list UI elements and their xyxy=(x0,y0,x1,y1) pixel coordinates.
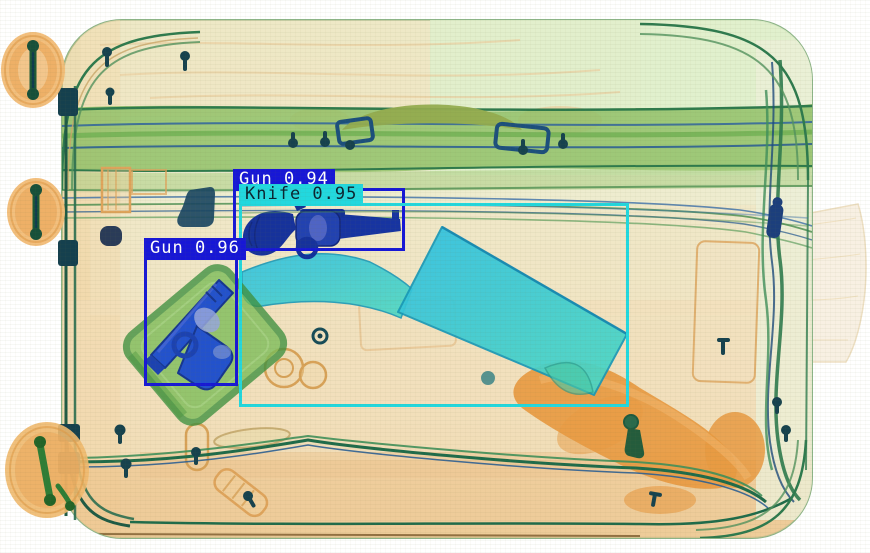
wheel-mid-left xyxy=(7,178,65,246)
xray-scan-image: Gun 0.94 Knife 0.95 Gun 0.96 xyxy=(0,0,870,553)
detection-box-gun-2: Gun 0.96 xyxy=(144,257,238,386)
detection-label-gun-2: Gun 0.96 xyxy=(144,238,246,260)
detection-label-knife: Knife 0.95 xyxy=(239,184,363,206)
detection-box-knife: Knife 0.95 xyxy=(239,203,629,407)
wheel-top-left xyxy=(1,32,65,108)
wheel-bottom-left xyxy=(5,422,89,518)
